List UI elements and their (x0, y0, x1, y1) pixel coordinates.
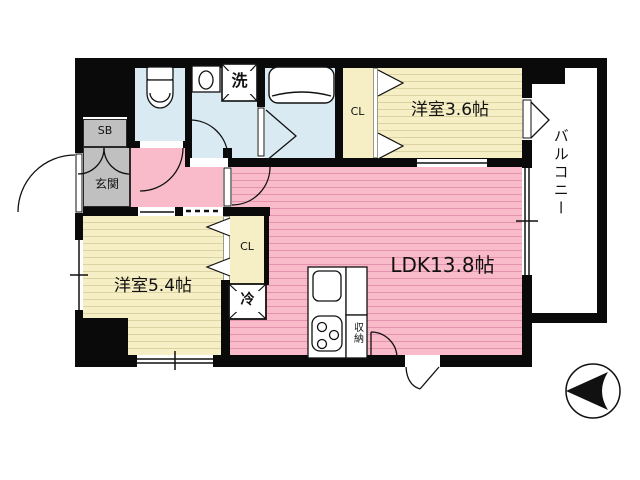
washroom-door-swing (190, 120, 228, 158)
toilet-bowl (147, 80, 173, 108)
hall-ldk-door-swing (232, 167, 270, 205)
room-lower-label: 洋室5.4帖 (83, 278, 223, 296)
storage-door-swing (371, 332, 397, 358)
refrigerator-label: 冷 (229, 293, 266, 308)
floor-plan: 洋室3.6帖 洋室5.4帖 LDK13.8帖 バルコニー CL CL SB 玄関… (0, 0, 640, 480)
shoe-box-door-swing-right (104, 148, 130, 174)
room-upper-label: 洋室3.6帖 (378, 102, 522, 120)
sink-basin (199, 71, 213, 89)
bathtub (269, 67, 334, 103)
toilet-door-swing (140, 148, 183, 191)
bathroom-door-swing (266, 110, 296, 161)
washing-machine-label: 洗 (222, 73, 257, 90)
balcony-door-leaf (523, 100, 531, 138)
stove-burner-1 (318, 323, 327, 332)
bathroom-door-leaf (258, 108, 264, 156)
stove-burner-3 (318, 340, 327, 349)
closet-upper-folding-door-1 (378, 70, 403, 96)
closet-lower-folding-door-1 (207, 218, 230, 236)
stove-burner-2 (330, 331, 339, 340)
compass-icon (566, 364, 620, 418)
closet-upper-label: CL (342, 106, 373, 118)
shoe-box-label: SB (83, 125, 127, 137)
ldk-exterior-door-swing (406, 367, 439, 389)
closet-upper-folding-door-2 (378, 133, 403, 159)
closet-lower-folding-door-2 (207, 258, 230, 276)
closet-lower-label: CL (230, 241, 264, 253)
balcony-label: バルコニー (552, 128, 568, 218)
entrance-door-swing (18, 155, 75, 212)
balcony-door-swing (531, 102, 549, 138)
entrance-door-leaf (76, 154, 82, 212)
storage-label: 収納 (351, 322, 362, 344)
fixture-layer (0, 0, 640, 480)
kitchen-sink (313, 271, 341, 301)
hall-ldk-door-leaf (224, 168, 231, 206)
ldk-label: LDK13.8帖 (345, 255, 540, 276)
toilet-tank (147, 67, 173, 80)
entrance-label: 玄関 (83, 178, 131, 191)
